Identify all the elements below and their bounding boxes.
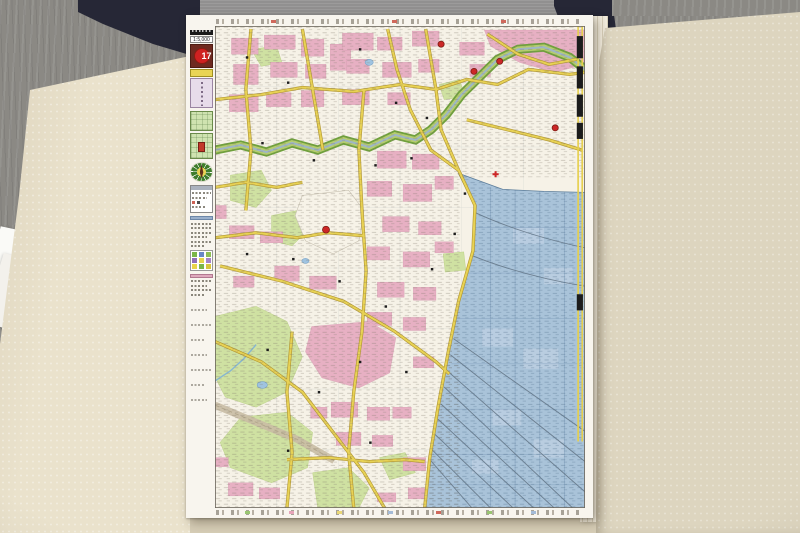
atlas-map-page: 1:5,000 17: [186, 15, 593, 518]
compass-needle: [200, 164, 204, 178]
case-flap-right: [596, 6, 800, 533]
title-text-placeholder: [192, 30, 211, 32]
vertical-text-placeholder: [201, 82, 203, 106]
page-number-badge: 17: [194, 48, 210, 64]
index-map-grid-upper: [190, 111, 213, 131]
photo-scene: 1:5,000 17: [0, 0, 800, 533]
district-index-box: [190, 78, 213, 108]
legend-symbol-row: [192, 201, 211, 203]
legend-tick: [289, 511, 294, 514]
adjacent-page-labels-bottom: [216, 510, 582, 515]
table-surface-corner: [612, 0, 800, 16]
adjacent-page-labels-top: [216, 19, 582, 24]
legend-header-blue: [190, 216, 213, 220]
margin-notes: [190, 309, 213, 401]
legend-header: [191, 186, 212, 190]
legend-tick: [245, 511, 250, 514]
map-scale-label: 1:5,000: [190, 36, 213, 43]
city-tiny-labels-upper-right: [460, 26, 585, 177]
city-tiny-labels: [215, 26, 460, 508]
legend-tick: [531, 511, 536, 514]
atlas-title-bar: [190, 30, 213, 35]
legend-tick: [436, 511, 441, 514]
index-map-grid-lower: [190, 133, 213, 159]
red-label-tick: [271, 20, 276, 23]
legend-rows-2: [190, 280, 213, 296]
legend-box-symbols: [190, 185, 213, 214]
adjacent-pages-strip: [190, 69, 213, 77]
legend-color-swatches: [190, 250, 213, 271]
current-page-marker: [198, 142, 205, 152]
map-legend-sidebar: 1:5,000 17: [190, 28, 213, 511]
legend-tick: [337, 511, 342, 514]
legend-tick: [487, 511, 492, 514]
page-number-plate: 17: [190, 44, 213, 68]
compass-rose-icon: [190, 162, 213, 182]
red-label-tick: [392, 20, 397, 23]
page-number: 17: [202, 49, 212, 63]
legend-tick: [388, 511, 393, 514]
case-flap-left: [0, 52, 190, 533]
city-map-graphic: [215, 26, 585, 508]
legend-header-pink: [190, 274, 213, 278]
red-label-tick: [501, 20, 506, 23]
legend-rows-1: [190, 223, 213, 248]
